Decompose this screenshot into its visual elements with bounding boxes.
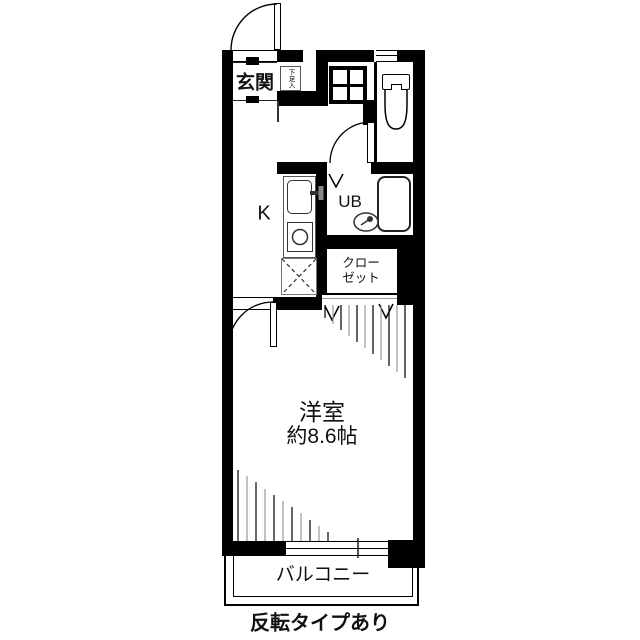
balcony-sliding-window bbox=[286, 541, 388, 556]
wall bbox=[316, 50, 328, 95]
refrigerator-space bbox=[281, 258, 317, 295]
threshold-tick bbox=[246, 57, 259, 65]
closet-door-track bbox=[322, 293, 397, 305]
grid-cell bbox=[333, 70, 347, 84]
entrance-door-arc bbox=[231, 4, 277, 50]
bath-sink-spout bbox=[361, 219, 370, 225]
grid-cell bbox=[333, 87, 347, 101]
wall-pillar bbox=[388, 540, 425, 568]
shoe-cabinet-label: 下足入 bbox=[287, 69, 294, 89]
wall bbox=[277, 50, 303, 62]
entrance-label: 玄関 bbox=[236, 68, 274, 95]
kitchen-label: K bbox=[257, 203, 270, 226]
closet-label-line2: ゼット bbox=[342, 271, 380, 286]
kitchen-sink bbox=[287, 180, 312, 214]
hall-door-leaf bbox=[367, 122, 375, 163]
step-tick bbox=[246, 96, 259, 103]
entrance-door-leaf bbox=[274, 3, 281, 50]
bath-sink bbox=[354, 213, 378, 231]
room-door-leaf bbox=[270, 302, 277, 347]
wall bbox=[371, 162, 425, 174]
bathtub bbox=[377, 176, 411, 232]
unit-bath-label: UB bbox=[338, 192, 362, 212]
room-label: 洋室 約8.6帖 bbox=[286, 399, 357, 449]
floor-plan: 下足入 bbox=[0, 0, 640, 640]
toilet-bowl bbox=[385, 90, 407, 129]
closet-door-v-mark bbox=[379, 304, 393, 318]
room-size: 約8.6帖 bbox=[286, 425, 357, 449]
room-name: 洋室 bbox=[286, 399, 357, 425]
bath-sink-faucet bbox=[367, 216, 373, 222]
meter-box-niche bbox=[303, 50, 316, 91]
wall-closet-pillar bbox=[397, 249, 425, 305]
wall bbox=[316, 162, 327, 305]
toilet-flush bbox=[391, 84, 402, 91]
room-door-opening bbox=[233, 297, 273, 310]
shoe-cabinet: 下足入 bbox=[280, 66, 301, 91]
closet-label: クロー ゼット bbox=[342, 256, 380, 286]
closet-label-line1: クロー bbox=[342, 256, 380, 271]
wall bbox=[316, 235, 425, 249]
bath-door-v-mark bbox=[329, 174, 343, 187]
closet-door-v-mark bbox=[325, 306, 339, 320]
grid-cell bbox=[350, 87, 364, 101]
toilet-window bbox=[376, 50, 397, 62]
grid-cell bbox=[350, 70, 364, 84]
wall bbox=[233, 541, 286, 556]
washing-machine-area bbox=[329, 66, 367, 104]
stove bbox=[287, 222, 313, 252]
wall bbox=[273, 297, 322, 310]
hall-door-arc bbox=[330, 122, 371, 163]
note-label: 反転タイプあり bbox=[250, 607, 390, 636]
step-edge-line bbox=[277, 101, 279, 122]
wall-right bbox=[413, 50, 425, 568]
wall-left bbox=[222, 50, 233, 556]
balcony-label: バルコニー bbox=[276, 560, 371, 587]
